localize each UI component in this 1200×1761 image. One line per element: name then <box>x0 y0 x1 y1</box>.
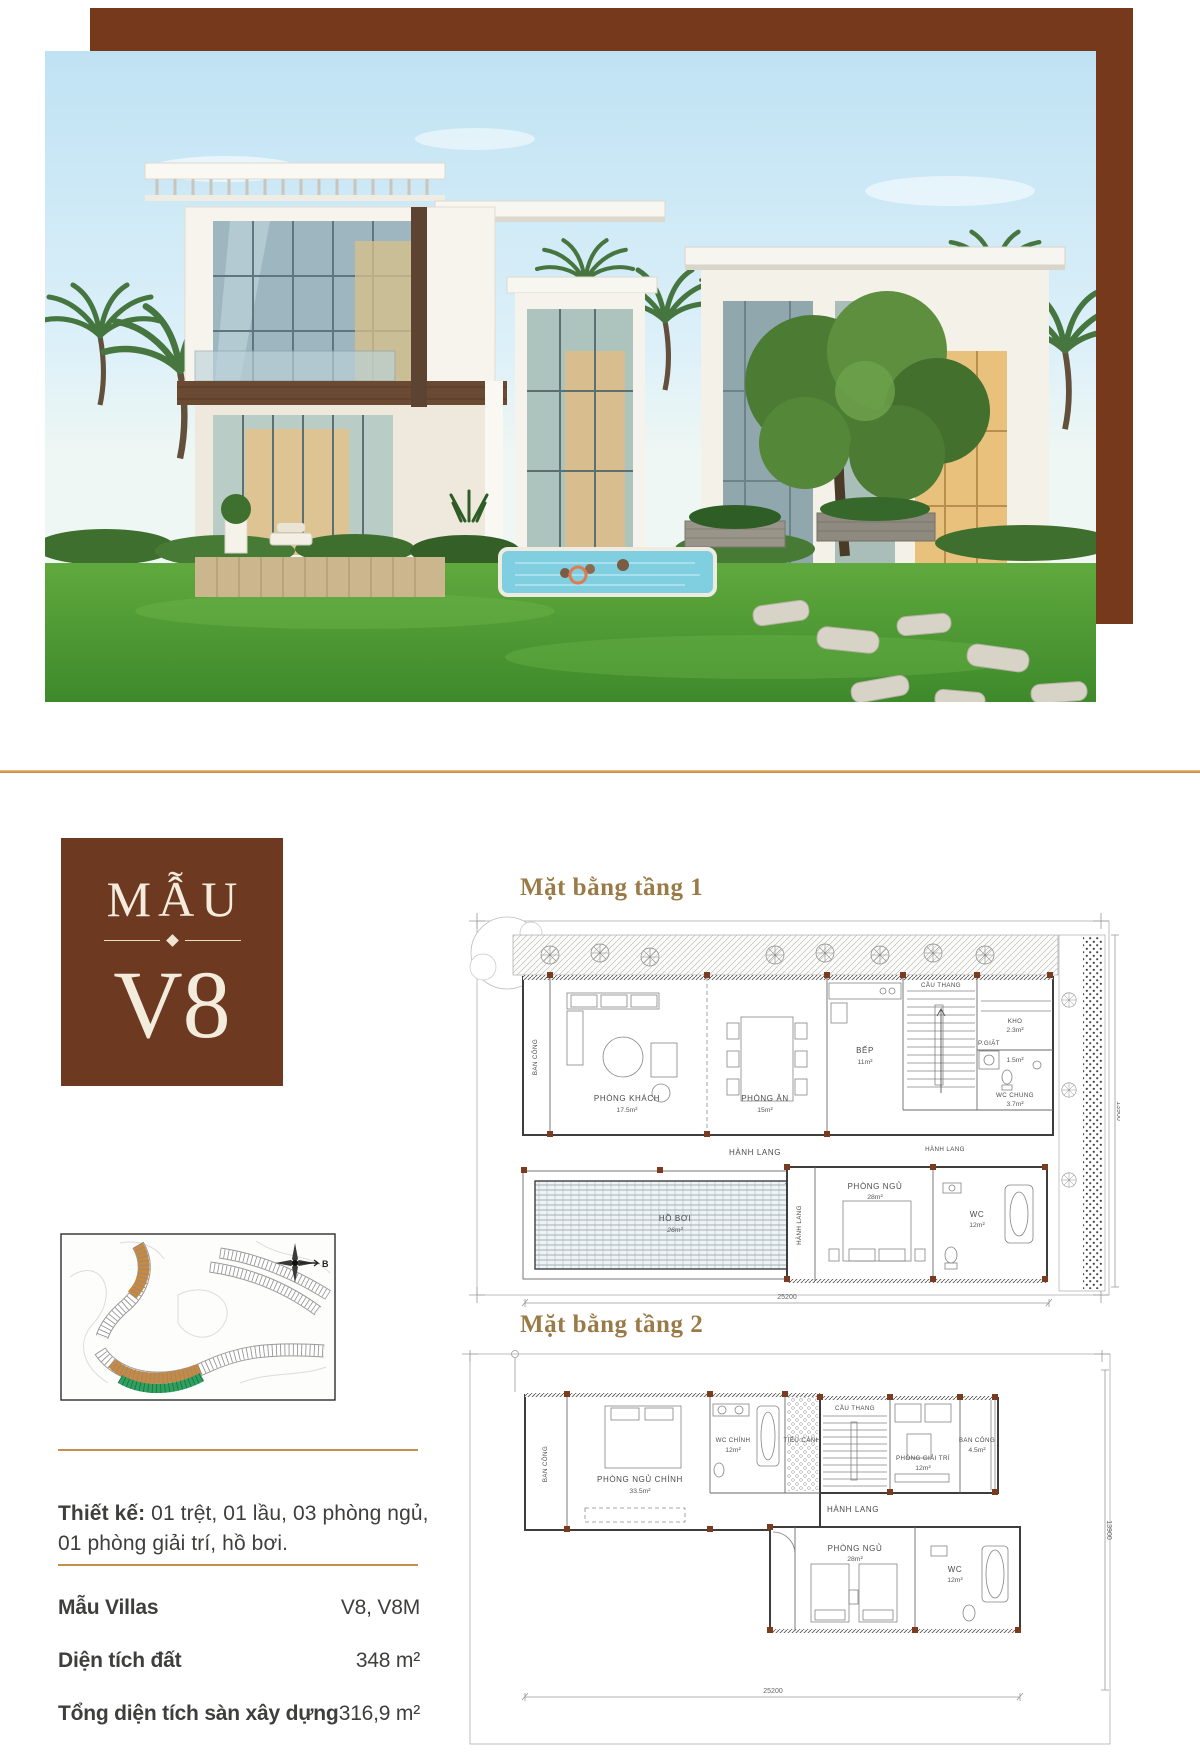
svg-text:33.5m²: 33.5m² <box>629 1488 651 1495</box>
svg-text:3.7m²: 3.7m² <box>1006 1101 1024 1108</box>
plan2-lower-block <box>770 1527 1020 1633</box>
plan1-label-living: PHÒNG KHÁCH <box>594 1094 660 1103</box>
plan2-label-wc-master: WC CHÍNH <box>716 1437 751 1444</box>
svg-text:12m²: 12m² <box>725 1447 741 1454</box>
svg-text:17.5m²: 17.5m² <box>616 1107 638 1114</box>
brochure-page: MẪU V8 Mặt bằng tầng 1 <box>0 0 1200 1761</box>
plan1-label-dining: PHÒNG ĂN <box>741 1094 788 1103</box>
spec-value-model: V8, V8M <box>341 1596 420 1620</box>
plan1-upper-block <box>523 975 1053 1135</box>
plan1-label-corridor-1: HÀNH LANG <box>729 1148 781 1157</box>
design-note: Thiết kế: 01 trệt, 01 lầu, 03 phòng ngủ,… <box>58 1499 488 1560</box>
spec-label-model: Mẫu Villas <box>58 1596 158 1620</box>
svg-text:1.5m²: 1.5m² <box>1006 1057 1024 1064</box>
spec-row-land-area: Diện tích đất 348 m² <box>58 1649 420 1673</box>
plan1-label-corridor-3: HÀNH LANG <box>796 1205 803 1245</box>
spec-label-floor-area: Tổng diện tích sàn xây dựng <box>58 1702 339 1726</box>
rule-above-specs <box>58 1564 418 1566</box>
plan1-label-wc: WC <box>970 1210 985 1219</box>
plan1-label-laundry: P.GIẶT <box>978 1040 1000 1047</box>
masterplan-thumbnail: B <box>60 1233 336 1401</box>
floorplan-2-title: Mặt bằng tầng 2 <box>520 1311 703 1339</box>
wood-deck <box>195 557 445 597</box>
spec-value-land-area: 348 m² <box>356 1649 420 1673</box>
plan2-label-corridor: HÀNH LANG <box>827 1505 879 1514</box>
badge-title: MẪU <box>107 871 245 929</box>
design-note-lead: Thiết kế: <box>58 1502 145 1525</box>
svg-text:11m²: 11m² <box>858 1059 874 1066</box>
plan2-label-wc: WC <box>948 1565 963 1574</box>
plan2-label-entertainment: PHÒNG GIẢI TRÍ <box>896 1455 950 1462</box>
plan1-label-stairs: CẦU THANG <box>921 982 961 989</box>
svg-text:12m²: 12m² <box>969 1222 985 1229</box>
plan1-label-pool: HỒ BƠI <box>659 1213 691 1223</box>
rule-above-design-note <box>58 1449 418 1451</box>
plan2-label-balcony-left: BAN CÔNG <box>542 1446 549 1482</box>
floorplan-1-drawing: BAN CÔNG PHÒNG KHÁCH 17.5m² PHÒNG ĂN 15m… <box>455 905 1120 1315</box>
plan1-label-wc-shared: WC CHUNG <box>996 1092 1034 1099</box>
svg-text:28m²: 28m² <box>867 1194 883 1201</box>
plan2-label-master: PHÒNG NGỦ CHÍNH <box>597 1475 683 1484</box>
plan2-dimension-width: 25200 <box>763 1688 783 1695</box>
svg-text:12m²: 12m² <box>915 1465 931 1472</box>
plan1-dimension-height: 13900 <box>1115 1101 1120 1121</box>
spec-label-land-area: Diện tích đất <box>58 1649 181 1673</box>
plan1-label-storage: KHO <box>1008 1018 1023 1025</box>
plan1-label-kitchen: BẾP <box>856 1045 874 1055</box>
section-divider <box>0 770 1200 773</box>
plan1-side-garden <box>1059 935 1105 1291</box>
svg-text:26m²: 26m² <box>666 1227 683 1234</box>
svg-text:15m²: 15m² <box>757 1107 773 1114</box>
svg-text:4.5m²: 4.5m² <box>968 1447 986 1454</box>
spec-row-floor-area: Tổng diện tích sàn xây dựng 316,9 m² <box>58 1702 420 1726</box>
plan1-label-balcony: BAN CÔNG <box>532 1039 539 1075</box>
plan1-label-corridor-2: HÀNH LANG <box>925 1146 965 1153</box>
floorplan-2-drawing: BAN CÔNG PHÒNG NGỦ CHÍNH 33.5m² WC CHÍNH… <box>455 1350 1120 1761</box>
plan2-label-stairs: CẦU THANG <box>835 1405 875 1412</box>
spec-value-floor-area: 316,9 m² <box>339 1702 420 1726</box>
diamond-ornament-icon <box>166 934 179 947</box>
plan1-label-bedroom: PHÒNG NGỦ <box>848 1182 903 1191</box>
compass-north-label: B <box>322 1259 329 1269</box>
badge-ornament <box>104 936 241 945</box>
swimming-pool <box>500 549 715 595</box>
plan1-dimension-width: 25200 <box>777 1294 797 1301</box>
spec-row-model: Mẫu Villas V8, V8M <box>58 1596 420 1620</box>
svg-text:2.3m²: 2.3m² <box>1006 1027 1024 1034</box>
plan2-label-court: TIỂU CẢNH <box>784 1437 821 1444</box>
plan2-label-balcony-right: BAN CÔNG <box>959 1437 995 1444</box>
plan2-dimension-height: 13900 <box>1105 1520 1112 1540</box>
plan1-terrace <box>513 935 1058 975</box>
svg-text:28m²: 28m² <box>847 1556 863 1563</box>
plan2-label-bedroom: PHÒNG NGỦ <box>828 1544 883 1553</box>
floorplan-1-title: Mặt bằng tầng 1 <box>520 874 703 902</box>
villa-render-photo <box>45 51 1096 702</box>
model-badge: MẪU V8 <box>61 838 283 1086</box>
svg-text:12m²: 12m² <box>947 1577 963 1584</box>
badge-model-code: V8 <box>113 957 230 1053</box>
